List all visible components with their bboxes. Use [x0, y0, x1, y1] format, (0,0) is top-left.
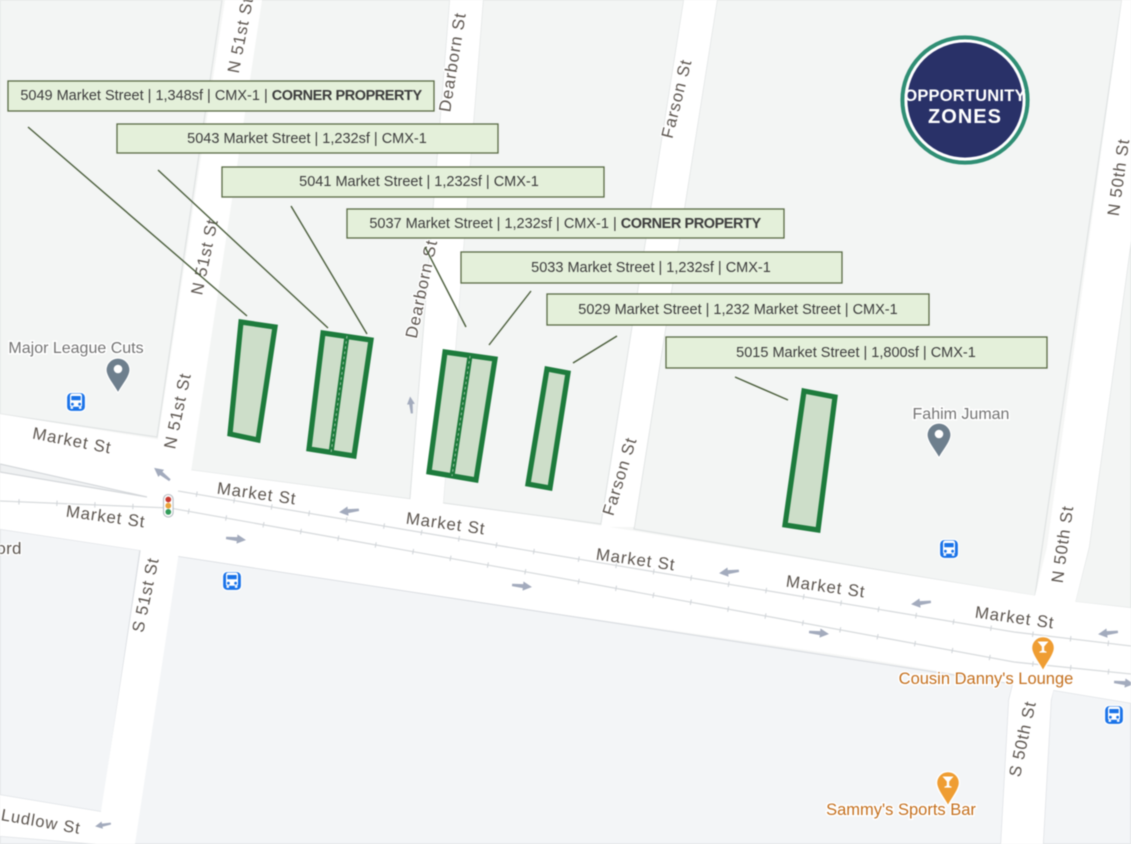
svg-text:Fahim Juman: Fahim Juman [913, 406, 1010, 423]
svg-text:OPPORTUNITY: OPPORTUNITY [904, 87, 1025, 105]
svg-text:5029 Market Street | 1,232 Mar: 5029 Market Street | 1,232 Market Street… [578, 302, 897, 318]
svg-text:Major League Cuts: Major League Cuts [8, 340, 143, 357]
svg-text:ZONES: ZONES [928, 106, 1002, 128]
svg-text:Sammy's Sports Bar: Sammy's Sports Bar [826, 801, 976, 819]
svg-text:5043 Market Street | 1,232sf |: 5043 Market Street | 1,232sf | CMX-1 [187, 131, 427, 147]
svg-text:5037 Market Street | 1,232sf |: 5037 Market Street | 1,232sf | CMX-1 | C… [369, 216, 761, 232]
svg-text:5041 Market Street | 1,232sf |: 5041 Market Street | 1,232sf | CMX-1 [299, 174, 539, 190]
svg-text:Cousin Danny's Lounge: Cousin Danny's Lounge [899, 670, 1074, 688]
svg-text:5049 Market Street | 1,348sf |: 5049 Market Street | 1,348sf | CMX-1 | C… [20, 88, 422, 104]
svg-text:5015 Market Street | 1,800sf |: 5015 Market Street | 1,800sf | CMX-1 [736, 345, 976, 361]
svg-text:5033 Market Street | 1,232sf |: 5033 Market Street | 1,232sf | CMX-1 [531, 260, 771, 276]
svg-text:ord: ord [0, 539, 22, 558]
